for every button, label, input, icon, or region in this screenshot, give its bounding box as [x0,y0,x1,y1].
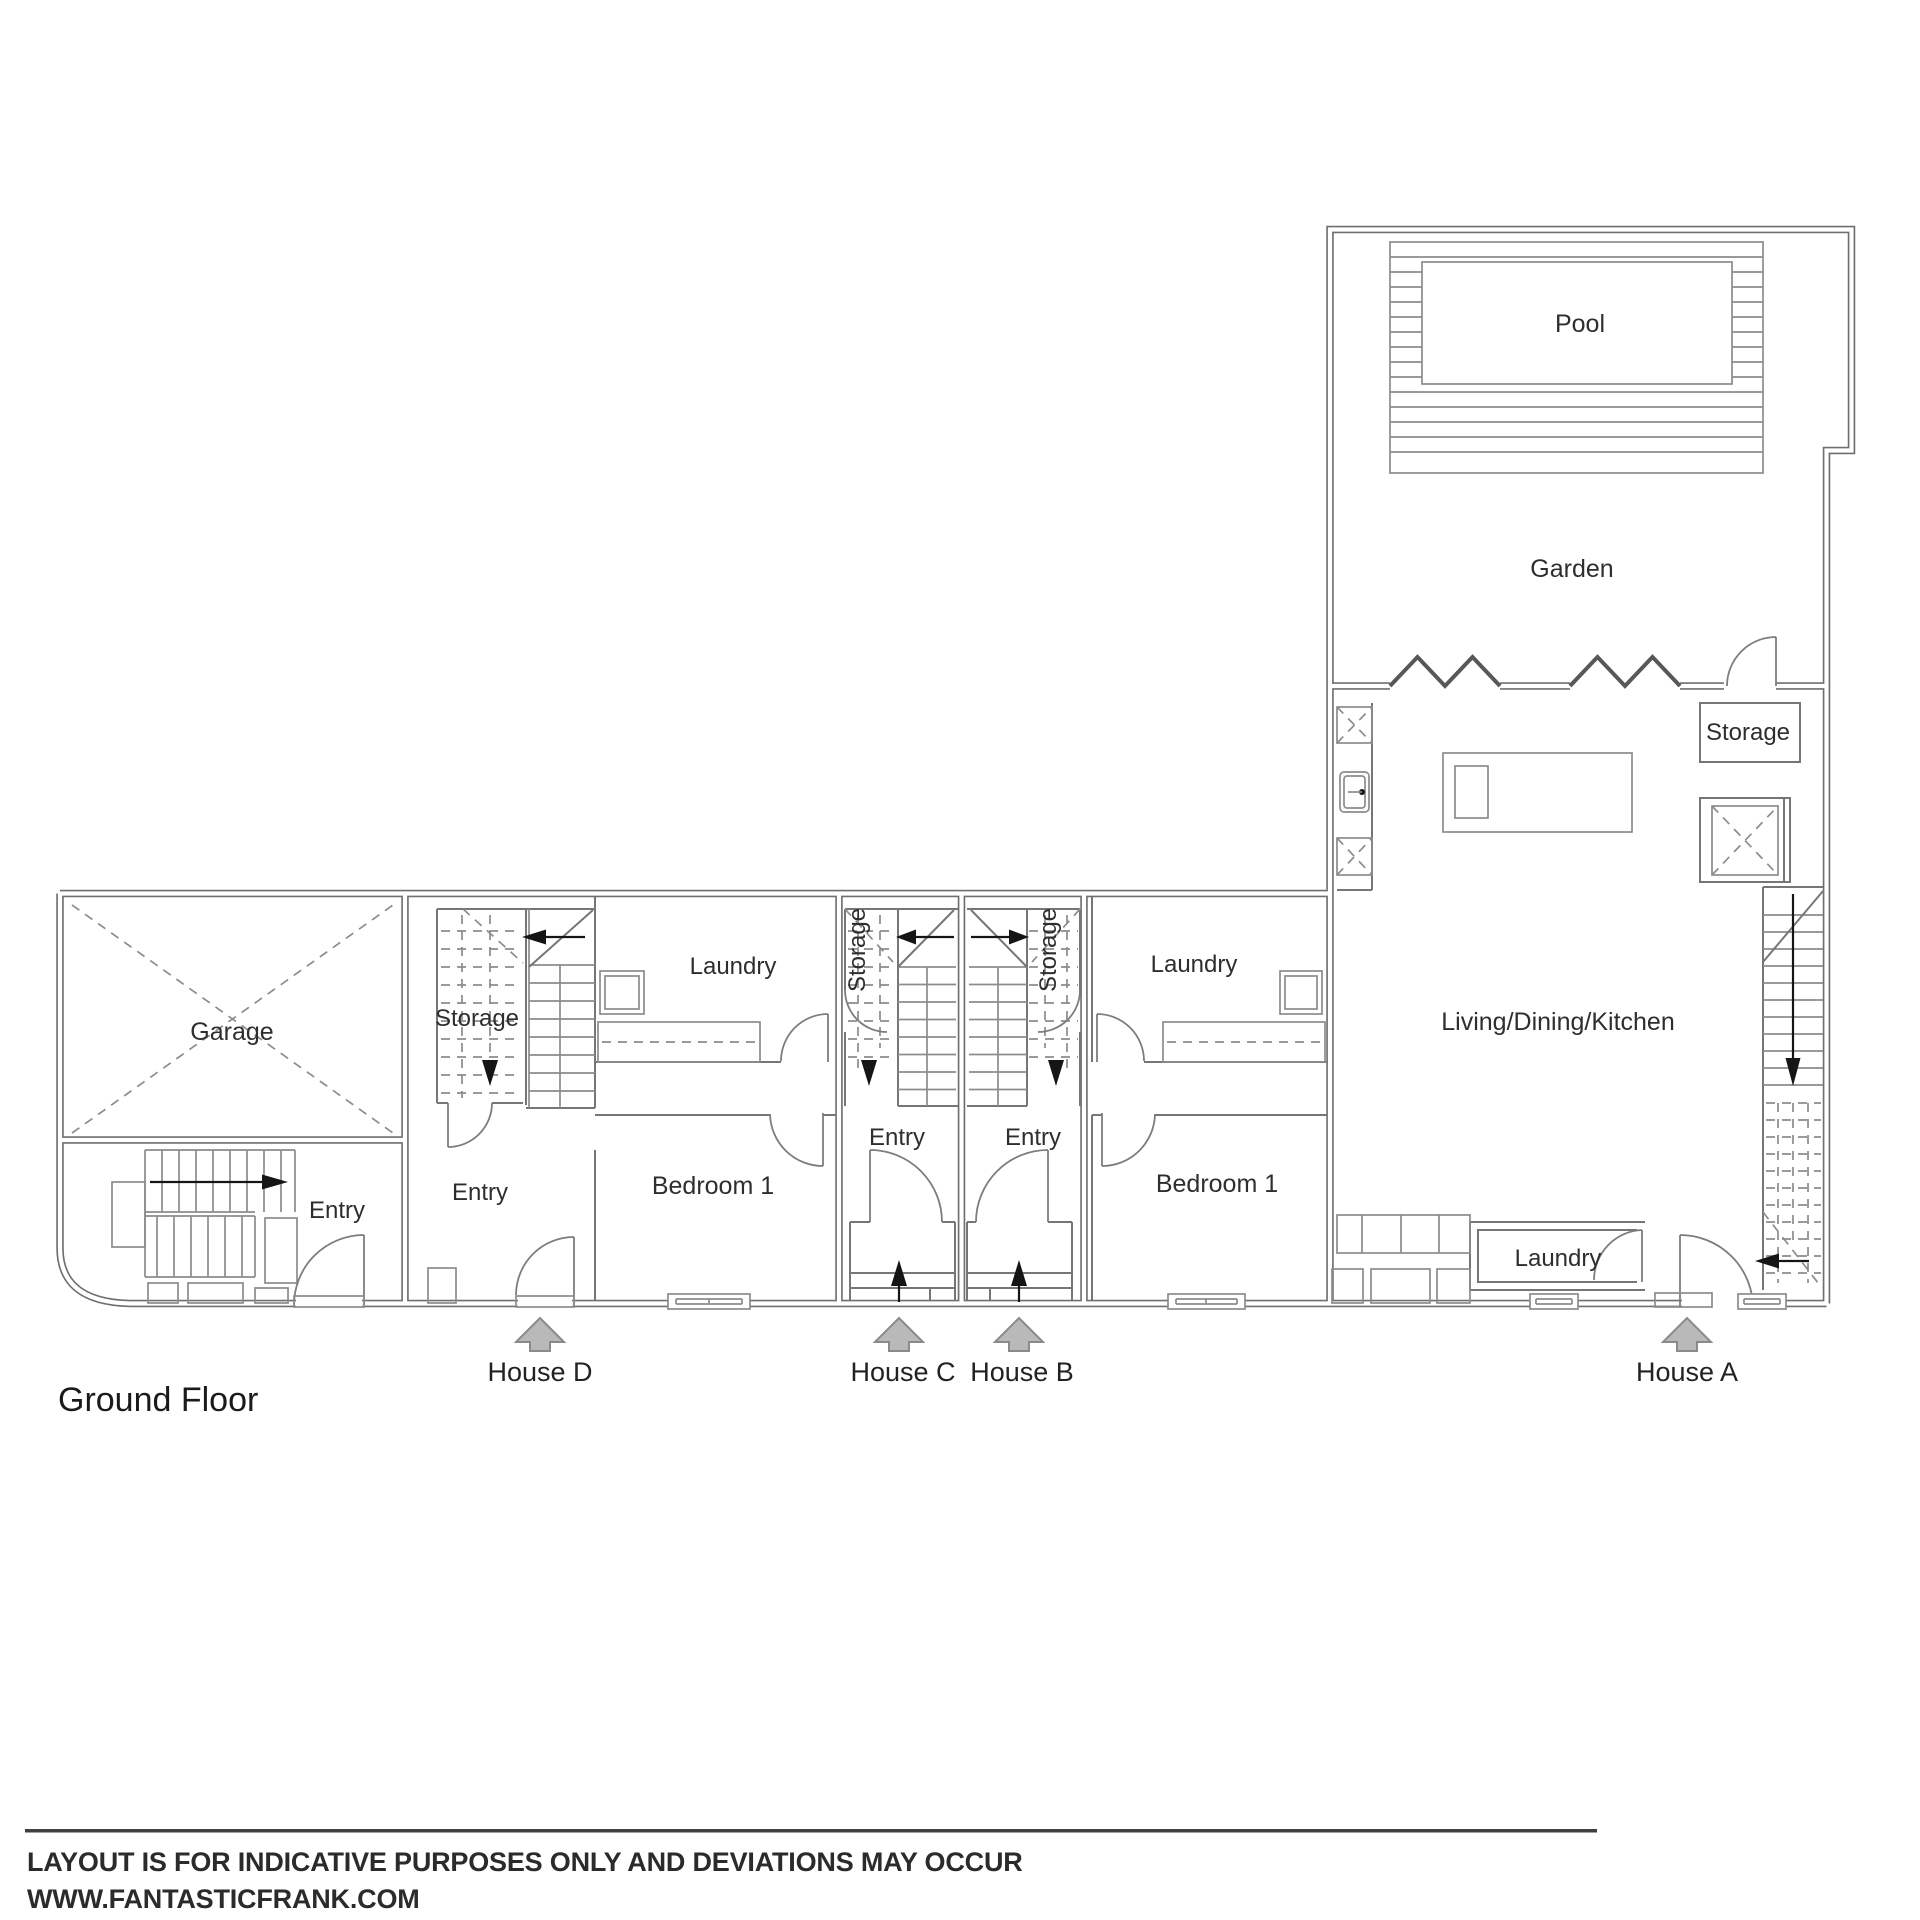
house-b-label: House B [970,1357,1074,1387]
room-label-storage-c: Storage [844,908,871,992]
room-label-entry-d: Entry [452,1179,508,1206]
room-label-garage: Garage [190,1018,273,1046]
house-b-core [969,909,1080,1106]
footer-divider [25,1829,1597,1833]
room-label-pool: Pool [1555,310,1605,338]
footer-disclaimer: LAYOUT IS FOR INDICATIVE PURPOSES ONLY A… [27,1847,1023,1877]
elevator [1700,798,1790,882]
window-bedroom-b [1168,1294,1245,1309]
house-d-marker-icon [516,1318,564,1351]
room-label-entry-c: Entry [869,1124,925,1151]
floor-plan-drawing: Garage Entry Storage Entry Laundry Bedro… [0,0,1920,1920]
room-label-entry-b: Entry [1005,1124,1061,1151]
room-label-laundry-d: Laundry [690,953,777,980]
kitchen-island [1443,753,1632,832]
room-label-laundry-a: Laundry [1515,1245,1602,1272]
house-b-marker-icon [995,1318,1043,1351]
kitchen-a [1337,707,1632,875]
room-label-storage-a: Storage [1706,719,1790,746]
room-labels: Garage Entry Storage Entry Laundry Bedro… [190,310,1790,1272]
folding-doors [1390,657,1680,686]
page-title: Ground Floor [58,1381,258,1419]
floorplan-page: Garage Entry Storage Entry Laundry Bedro… [0,0,1920,1920]
window-stairs-a [1738,1294,1786,1309]
window-bedroom-d [668,1294,750,1309]
pool-deck [1390,242,1763,473]
house-c-label: House C [850,1357,955,1387]
partitions [437,703,1823,1303]
house-labels: House D House C House B House A [487,1357,1738,1387]
room-label-living-a: Living/Dining/Kitchen [1441,1008,1674,1036]
window-laundry-a [1530,1294,1578,1309]
cabinets-a [1332,1215,1470,1303]
room-label-laundry-b: Laundry [1151,951,1238,978]
washer-b [1280,971,1322,1014]
room-label-storage-d: Storage [435,1005,519,1032]
room-label-bedroom-d: Bedroom 1 [652,1172,774,1200]
house-c-marker-icon [875,1318,923,1351]
house-markers [516,1318,1711,1351]
house-d-label: House D [487,1357,592,1387]
room-label-storage-b: Storage [1035,908,1062,992]
house-a-label: House A [1636,1357,1738,1387]
room-label-bedroom-b: Bedroom 1 [1156,1170,1278,1198]
room-label-entry-shared: Entry [309,1197,365,1224]
footer-website: WWW.FANTASTICFRANK.COM [27,1884,420,1914]
house-a-marker-icon [1663,1318,1711,1351]
shared-entry-stairs [112,1150,297,1303]
washer-d [600,971,644,1014]
house-a-stairs [1755,891,1823,1288]
room-label-garden: Garden [1530,555,1613,583]
